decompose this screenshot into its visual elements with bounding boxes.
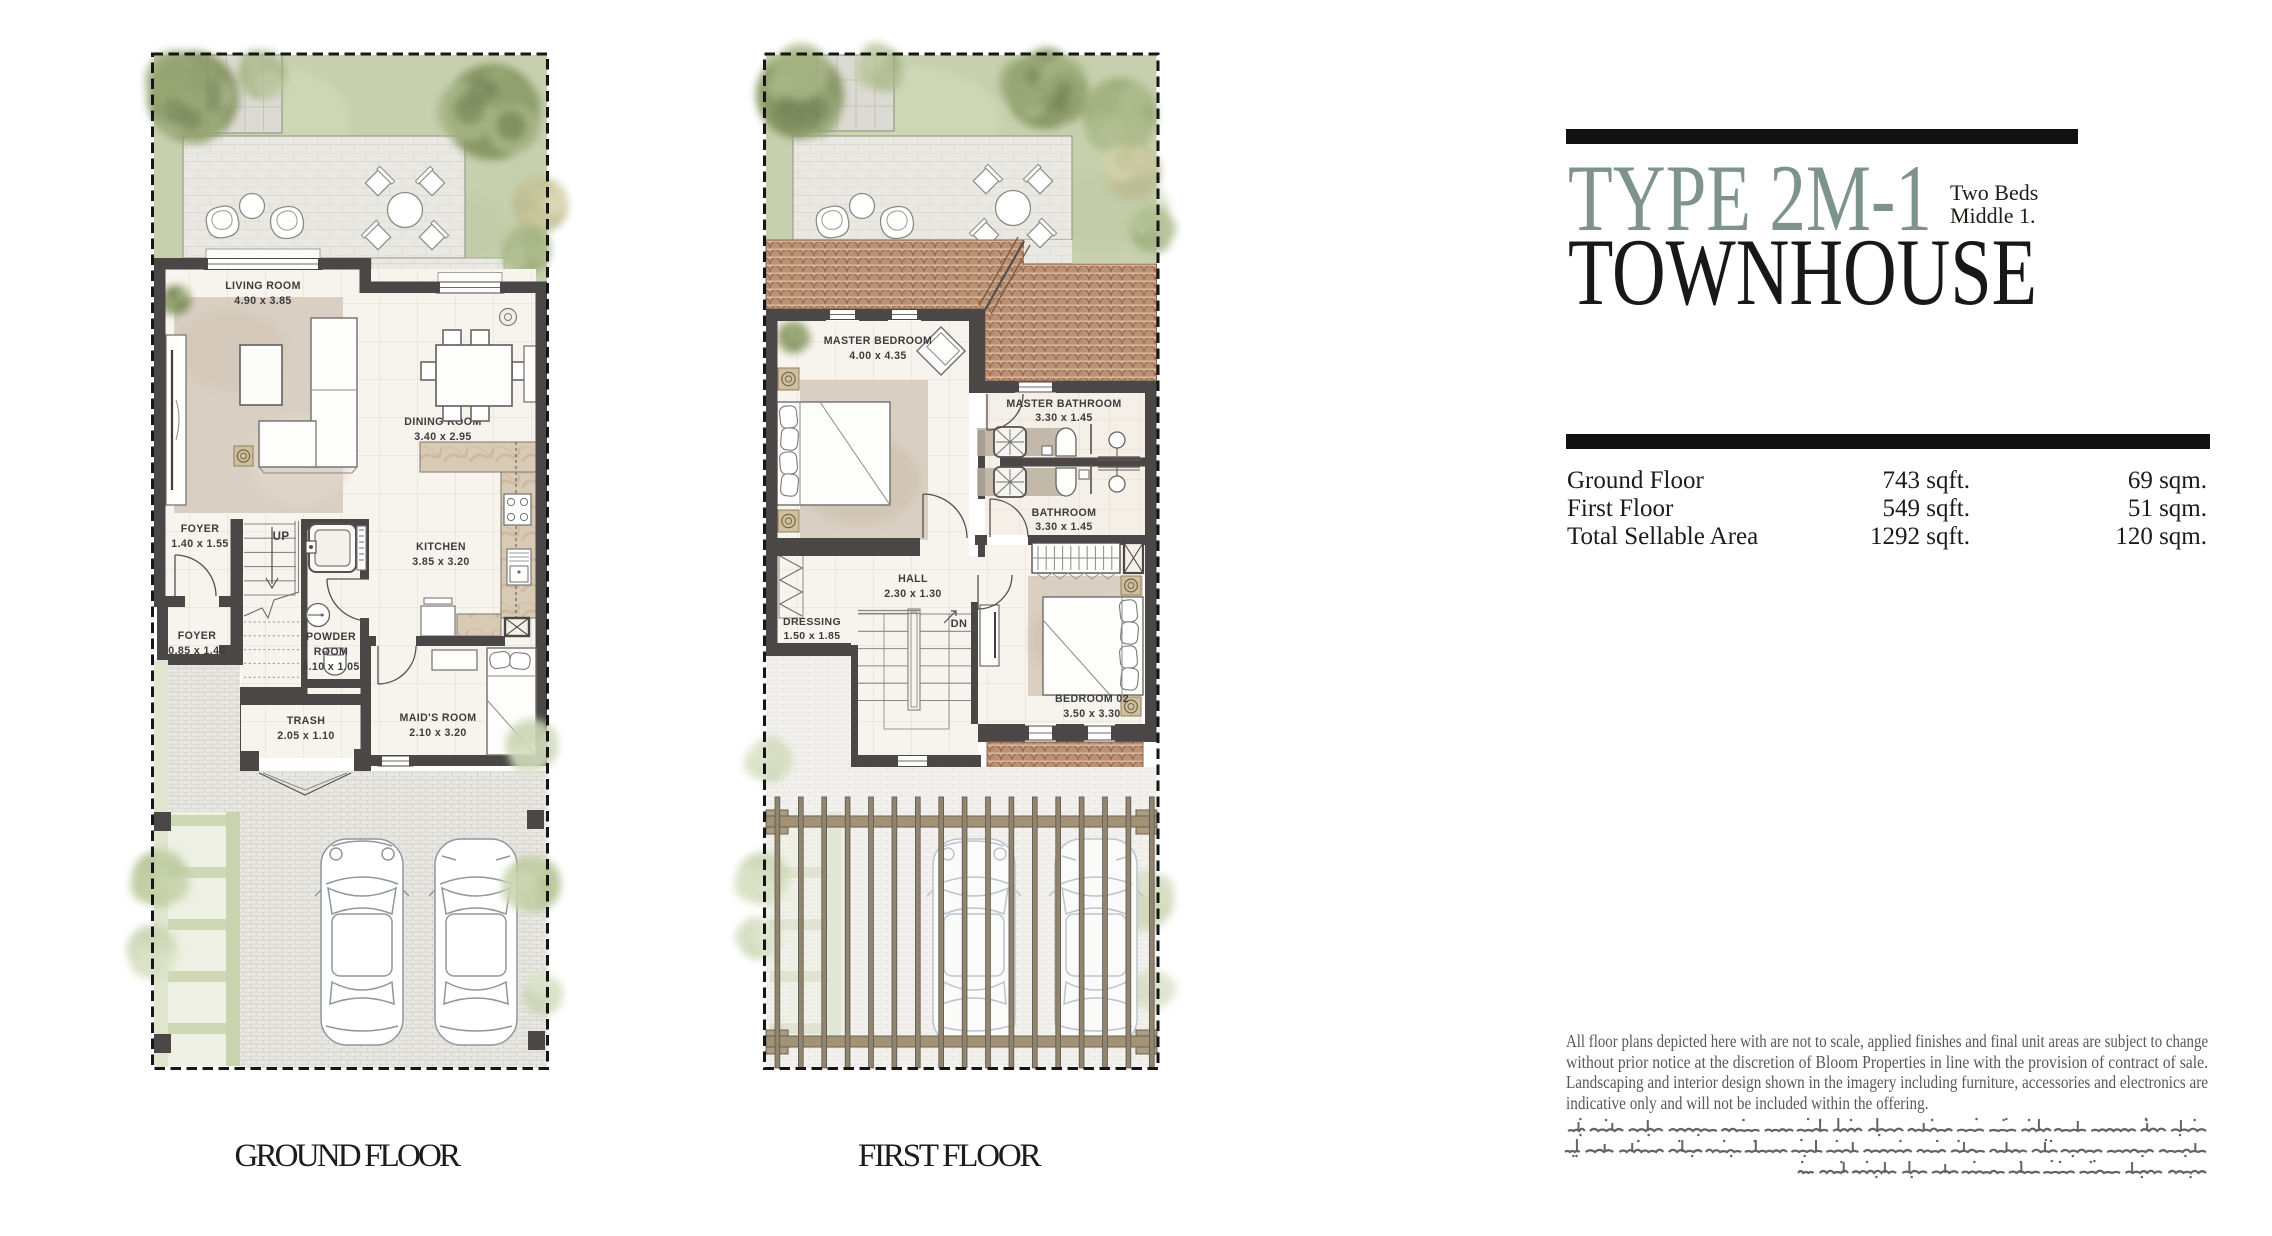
svg-text:2.10 x 3.20: 2.10 x 3.20 xyxy=(409,727,466,739)
svg-text:HALL: HALL xyxy=(898,573,928,585)
svg-text:KITCHEN: KITCHEN xyxy=(416,541,466,553)
svg-text:DRESSING: DRESSING xyxy=(783,616,841,628)
svg-text:FIRST FLOOR: FIRST FLOOR xyxy=(858,1138,1042,1174)
svg-text:3.10 x 1.05: 3.10 x 1.05 xyxy=(302,661,359,673)
svg-text:LIVING ROOM: LIVING ROOM xyxy=(225,280,301,292)
svg-text:BATHROOM: BATHROOM xyxy=(1032,507,1097,519)
svg-text:BEDROOM 02: BEDROOM 02 xyxy=(1055,693,1129,705)
svg-text:TRASH: TRASH xyxy=(287,715,326,727)
svg-text:2.30 x 1.30: 2.30 x 1.30 xyxy=(884,588,941,600)
svg-text:4.00 x 4.35: 4.00 x 4.35 xyxy=(849,350,906,362)
svg-text:3.30 x 1.45: 3.30 x 1.45 xyxy=(1035,412,1092,424)
svg-text:3.40 x 2.95: 3.40 x 2.95 xyxy=(414,431,471,443)
svg-text:3.50 x 3.30: 3.50 x 3.30 xyxy=(1063,708,1120,720)
svg-text:1.40 x 1.55: 1.40 x 1.55 xyxy=(171,538,228,550)
svg-text:DN: DN xyxy=(951,618,968,630)
svg-text:FOYER: FOYER xyxy=(178,630,217,642)
svg-text:POWDER: POWDER xyxy=(306,631,356,643)
svg-text:GROUND FLOOR: GROUND FLOOR xyxy=(235,1138,462,1174)
svg-text:MAID'S ROOM: MAID'S ROOM xyxy=(400,712,477,724)
svg-text:FOYER: FOYER xyxy=(181,523,220,535)
svg-text:0.85 x 1.40: 0.85 x 1.40 xyxy=(168,645,225,657)
svg-text:4.90 x 3.85: 4.90 x 3.85 xyxy=(234,295,291,307)
svg-text:MASTER BEDROOM: MASTER BEDROOM xyxy=(824,335,933,347)
svg-text:UP: UP xyxy=(273,531,290,543)
svg-text:MASTER BATHROOM: MASTER BATHROOM xyxy=(1006,398,1121,410)
svg-text:1.50 x 1.85: 1.50 x 1.85 xyxy=(784,630,841,642)
svg-text:ROOM: ROOM xyxy=(314,646,349,658)
svg-text:3.30 x 1.45: 3.30 x 1.45 xyxy=(1035,521,1092,533)
svg-text:TOWNHOUSE: TOWNHOUSE xyxy=(1568,219,2037,320)
svg-text:3.85 x 3.20: 3.85 x 3.20 xyxy=(412,556,469,568)
svg-text:2.05 x 1.10: 2.05 x 1.10 xyxy=(277,730,334,742)
